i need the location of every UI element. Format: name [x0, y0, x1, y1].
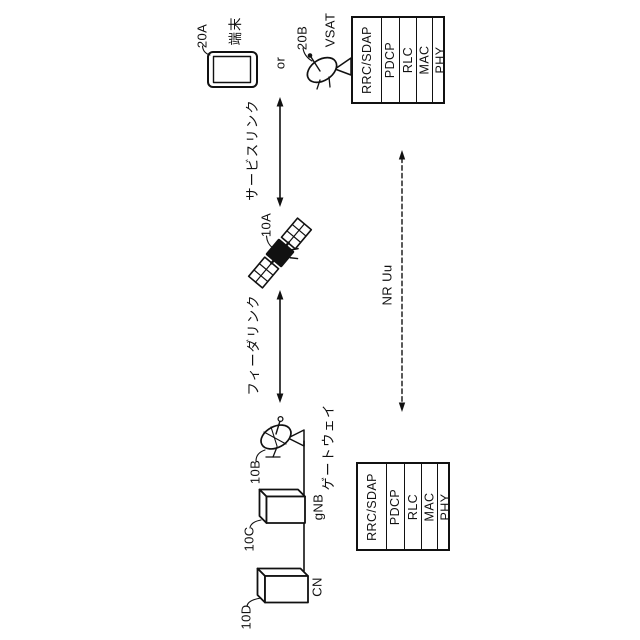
nr-uu-arrow — [399, 150, 405, 412]
service-link-arrow — [277, 97, 284, 207]
stack-cell: RLC — [404, 464, 421, 549]
diagram-artwork — [0, 0, 640, 640]
ref-20a-text: 20A — [195, 24, 210, 48]
stack-cell: PDCP — [381, 18, 399, 102]
ref-10c-text: 10C — [242, 526, 257, 551]
gnb-box-icon — [260, 490, 306, 524]
stack-cell: MAC — [421, 464, 438, 549]
ref-10a-text: 10A — [259, 213, 274, 237]
ref-10d-text: 10D — [239, 604, 254, 629]
stack-cell: MAC — [416, 18, 433, 102]
nr-uu-text: NR Uu — [380, 264, 395, 305]
ref-20b-text: 20B — [295, 26, 310, 50]
vsat-dish-icon — [303, 52, 351, 89]
terminal-text: 端末 — [224, 17, 244, 46]
gnb-text: gNB — [311, 494, 326, 521]
protocol-stack-gnb: RRC/SDAP PDCP RLC MAC PHY — [356, 462, 450, 551]
gateway-text: ゲートウェイ — [317, 404, 337, 491]
vsat-text: VSAT — [323, 13, 338, 48]
protocol-stack-ue: RRC/SDAP PDCP RLC MAC PHY — [351, 16, 445, 104]
feeder-link-arrow — [277, 290, 284, 403]
terminal-device-icon — [208, 52, 257, 87]
figure-canvas: 20A 端末 or 20B VSAT サービスリンク 10A フィーダリンク 1… — [0, 0, 640, 640]
cn-box-icon — [258, 569, 309, 603]
stack-cell: RRC/SDAP — [353, 18, 381, 102]
or-text: or — [273, 57, 288, 69]
feeder-link-text: フィーダリンク — [242, 294, 262, 395]
stack-cell: RLC — [399, 18, 416, 102]
stack-cell: PHY — [437, 464, 454, 549]
stack-cell: PHY — [432, 18, 449, 102]
ref-10b-text: 10B — [248, 460, 263, 484]
stack-cell: PDCP — [386, 464, 404, 549]
stack-cell: RRC/SDAP — [358, 464, 386, 549]
service-link-text: サービスリンク — [241, 99, 261, 201]
cn-text: CN — [310, 577, 325, 597]
